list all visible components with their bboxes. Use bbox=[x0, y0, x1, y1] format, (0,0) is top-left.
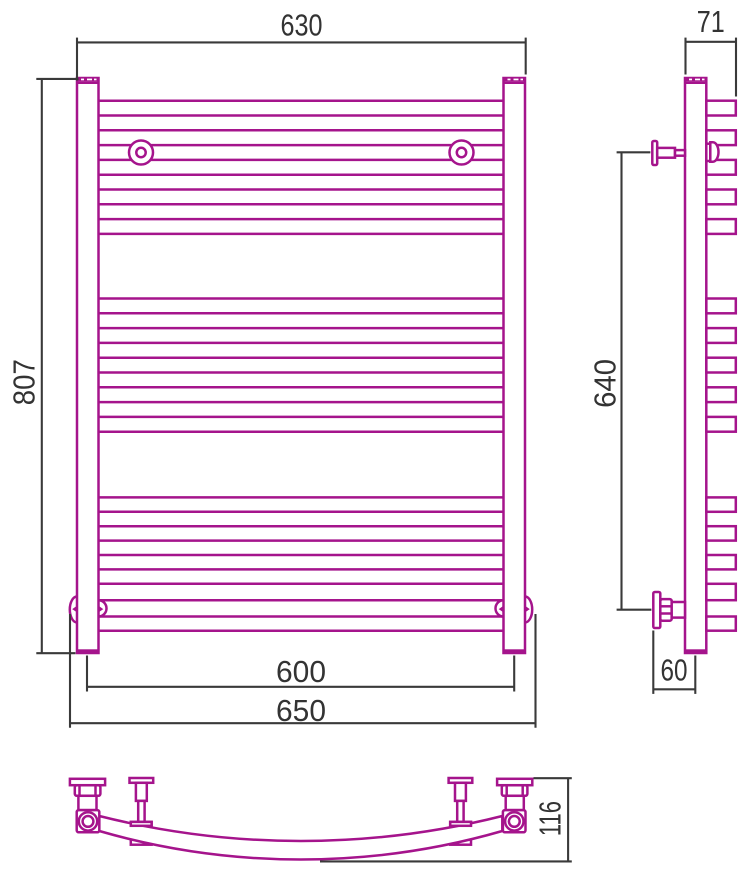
svg-text:630: 630 bbox=[281, 7, 323, 42]
svg-text:640: 640 bbox=[587, 359, 622, 408]
svg-text:600: 600 bbox=[276, 654, 326, 689]
svg-text:71: 71 bbox=[697, 4, 725, 39]
svg-text:60: 60 bbox=[661, 653, 688, 688]
svg-text:650: 650 bbox=[276, 693, 326, 728]
svg-text:116: 116 bbox=[532, 801, 567, 836]
svg-text:807: 807 bbox=[7, 359, 42, 405]
